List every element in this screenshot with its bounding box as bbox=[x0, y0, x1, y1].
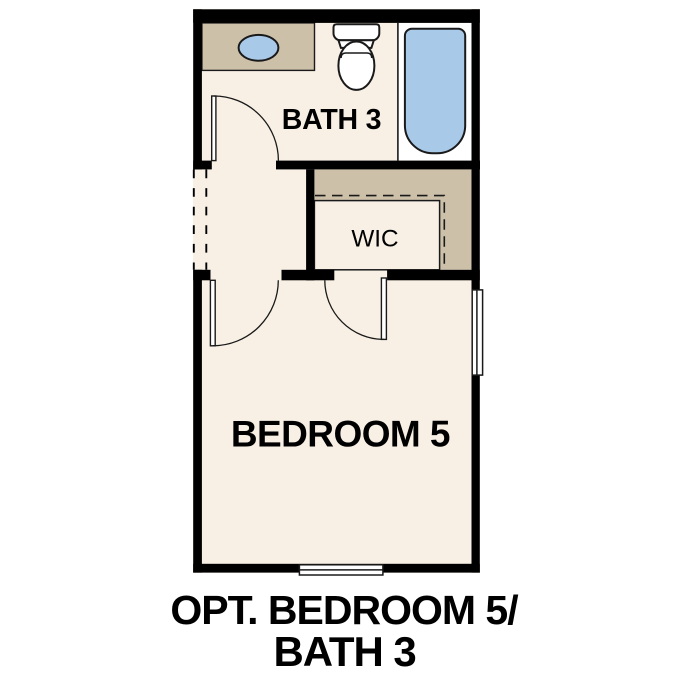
svg-text:BATH 3: BATH 3 bbox=[274, 628, 416, 675]
svg-text:BATH 3: BATH 3 bbox=[282, 104, 382, 136]
svg-text:WIC: WIC bbox=[351, 226, 398, 253]
svg-text:OPT. BEDROOM 5/: OPT. BEDROOM 5/ bbox=[170, 587, 518, 633]
svg-text:BEDROOM 5: BEDROOM 5 bbox=[231, 414, 450, 455]
